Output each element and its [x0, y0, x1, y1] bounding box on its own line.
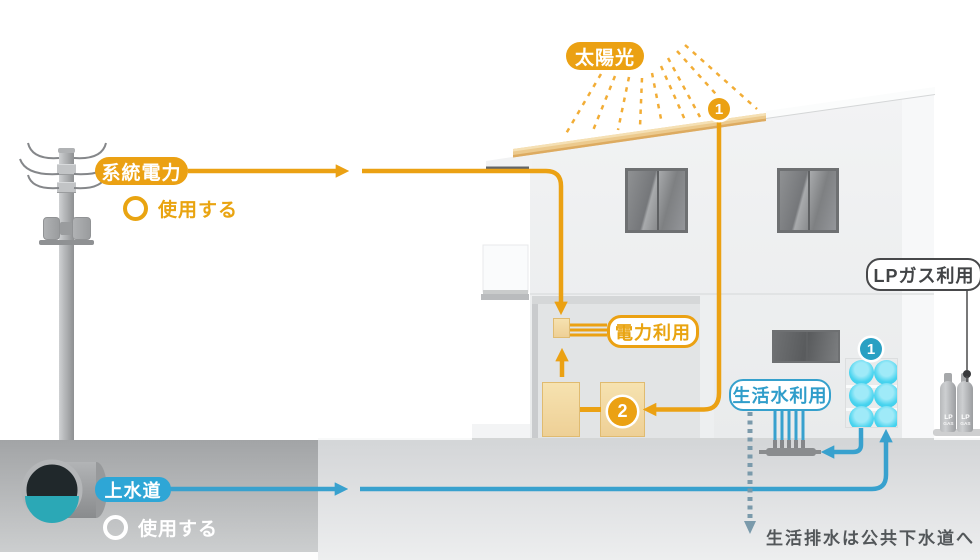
utility-pole [59, 150, 74, 440]
sewer-drain-arrow [744, 412, 756, 534]
water-heater-step-badge: 1 [860, 338, 882, 360]
power-use-label: 電力利用 [607, 315, 699, 348]
grid-use-option: 使用する [123, 195, 238, 222]
sewer-note-text: 生活排水は公共下水道へ [766, 524, 975, 549]
energy-water-flow-diagram: LP GAS LP GAS [0, 0, 980, 560]
option-label: 使用する [158, 195, 238, 222]
pole-collar [57, 164, 76, 175]
storage-battery-unit [542, 382, 580, 437]
distribution-board [553, 318, 570, 338]
water-supply-label: 上水道 [95, 477, 171, 502]
option-circle-icon [123, 196, 148, 221]
tank-cell [849, 406, 874, 428]
water-manifold [759, 409, 821, 456]
tank-cell [874, 406, 898, 428]
first-floor-window [772, 330, 840, 363]
cylinder-sublabel: GAS [960, 422, 970, 427]
option-circle-icon [103, 515, 128, 540]
second-floor-window-right [777, 168, 839, 233]
tank-cell [849, 383, 874, 408]
solar-step-badge: 1 [708, 98, 730, 120]
grid-power-label: 系統電力 [95, 157, 188, 185]
balcony [481, 245, 529, 300]
water-use-option: 使用する [103, 514, 218, 541]
tank-cell [849, 360, 874, 385]
pole-transformer [43, 217, 60, 240]
utility-pole-cap [58, 148, 75, 153]
conditioner-step-badge: 2 [608, 397, 637, 426]
hot-water-storage-unit [845, 358, 898, 428]
lp-gas-connector [963, 288, 971, 382]
tank-cell [874, 360, 898, 385]
second-floor-window-left [625, 168, 688, 233]
cylinder-sublabel: GAS [943, 422, 953, 427]
solar-power-flow [580, 120, 719, 410]
eave [486, 154, 532, 172]
solar-panel [513, 113, 766, 158]
solar-label: 太陽光 [566, 42, 644, 70]
lp-gas-use-label: LPガス利用 [866, 258, 980, 291]
pole-transformer [72, 217, 91, 240]
option-label: 使用する [138, 514, 218, 541]
lp-gas-cylinder: LP GAS [940, 381, 956, 432]
roof-edge [766, 87, 935, 119]
grid-power-flow [188, 171, 562, 377]
power-use-connectors [570, 325, 607, 335]
domestic-water-use-label: 生活水利用 [729, 379, 831, 411]
tank-cell [874, 383, 898, 408]
lp-gas-cylinder: LP GAS [957, 381, 973, 432]
water-supply-flow [170, 428, 886, 489]
pole-collar [57, 182, 76, 193]
pole-transformer-bracket [60, 222, 72, 235]
pole-platform [39, 240, 94, 245]
